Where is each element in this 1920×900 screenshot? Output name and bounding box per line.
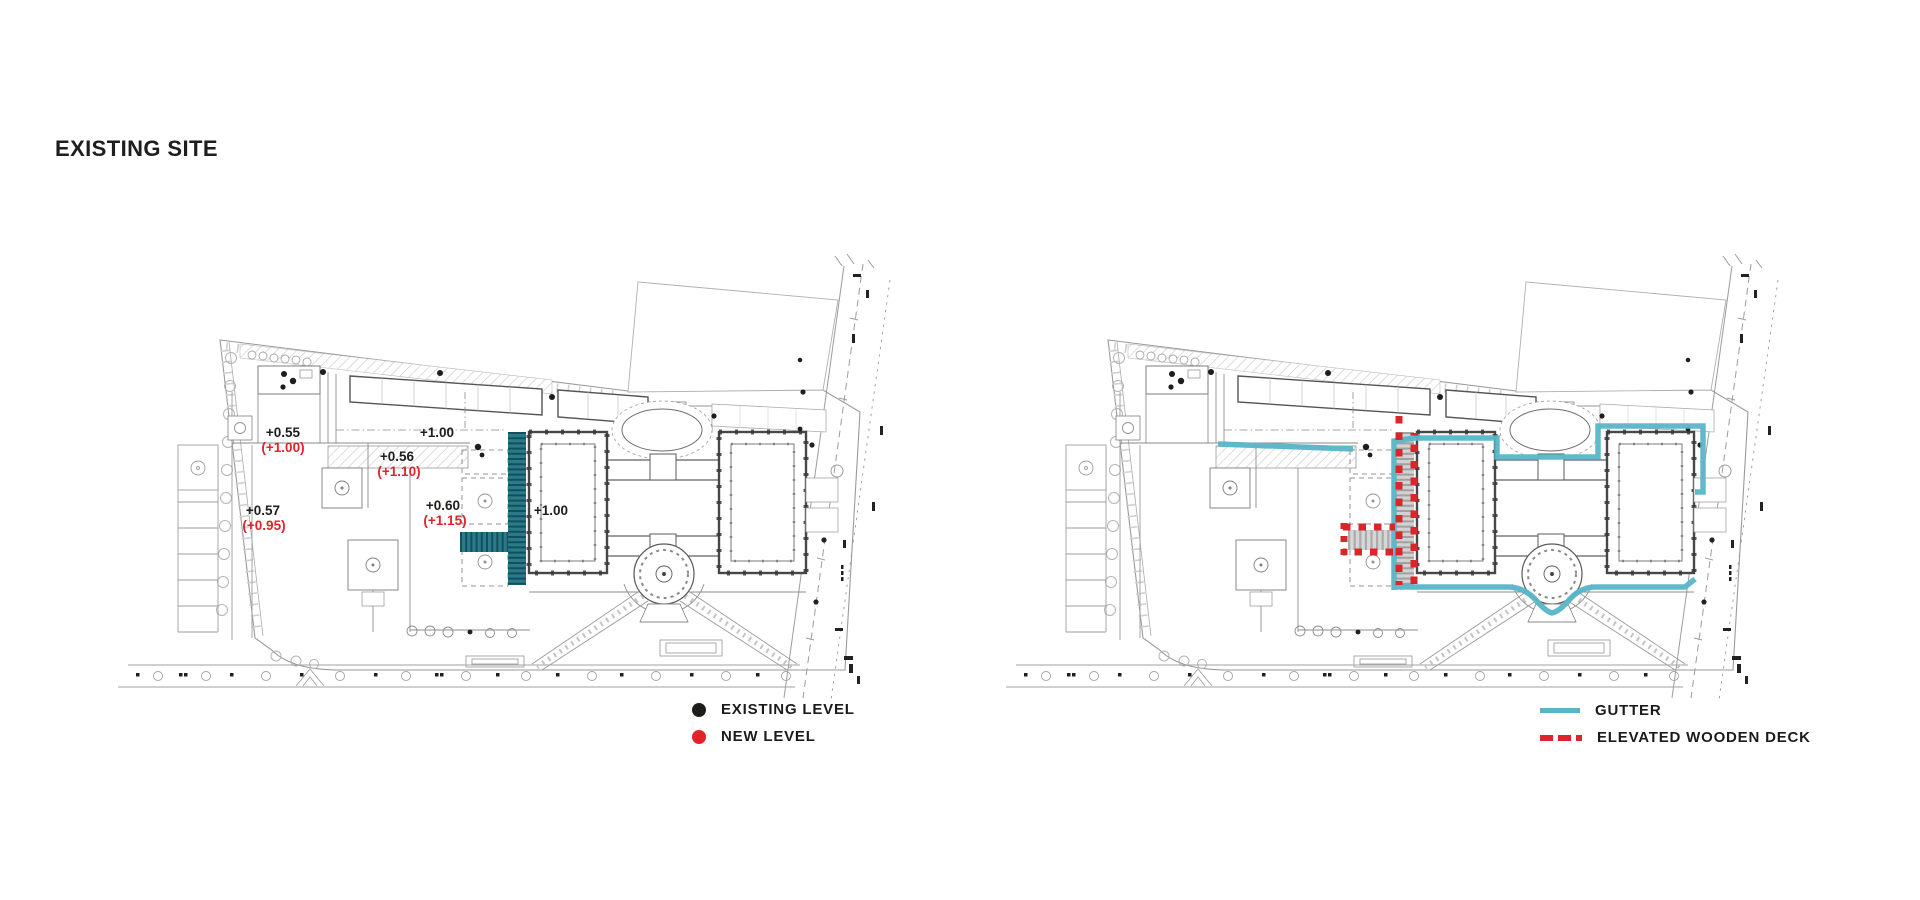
- gutter-line-icon: [1540, 708, 1580, 713]
- legend-row-elevated-deck: ELEVATED WOODEN DECK: [1540, 729, 1811, 746]
- left-plan-legend: EXISTING LEVEL NEW LEVEL: [692, 701, 855, 745]
- level-label-new: (+1.00): [261, 440, 304, 455]
- level-label-new: (+0.95): [242, 518, 285, 533]
- legend-row-gutter: GUTTER: [1540, 702, 1811, 719]
- site-plans-canvas: +0.55 (+1.00) +1.00 +0.56 (+1.10) +0.57 …: [0, 0, 1920, 900]
- dashed-line-icon: [1540, 735, 1582, 741]
- legend-label: NEW LEVEL: [721, 728, 816, 745]
- legend-label: EXISTING LEVEL: [721, 701, 855, 718]
- level-label: +0.60: [426, 498, 460, 513]
- right-plan-legend: GUTTER ELEVATED WOODEN DECK: [1540, 702, 1811, 746]
- level-label-new: (+1.10): [377, 464, 420, 479]
- level-label: +0.57: [246, 503, 280, 518]
- level-label: +0.55: [266, 425, 301, 440]
- existing-level-dot-icon: [692, 703, 706, 717]
- left-site-plan: +0.55 (+1.00) +1.00 +0.56 (+1.10) +0.57 …: [118, 254, 890, 700]
- legend-row-existing-level: EXISTING LEVEL: [692, 701, 855, 718]
- elevated-wooden-deck: [1348, 530, 1392, 550]
- right-site-plan: [1006, 254, 1778, 700]
- new-level-dot-icon: [692, 730, 706, 744]
- level-label-new: (+1.15): [423, 513, 466, 528]
- legend-label: ELEVATED WOODEN DECK: [1597, 729, 1811, 746]
- legend-row-new-level: NEW LEVEL: [692, 728, 855, 745]
- level-label: +0.56: [380, 449, 415, 464]
- level-label: +1.00: [420, 425, 454, 440]
- level-label: +1.00: [534, 503, 568, 518]
- legend-label: GUTTER: [1595, 702, 1661, 719]
